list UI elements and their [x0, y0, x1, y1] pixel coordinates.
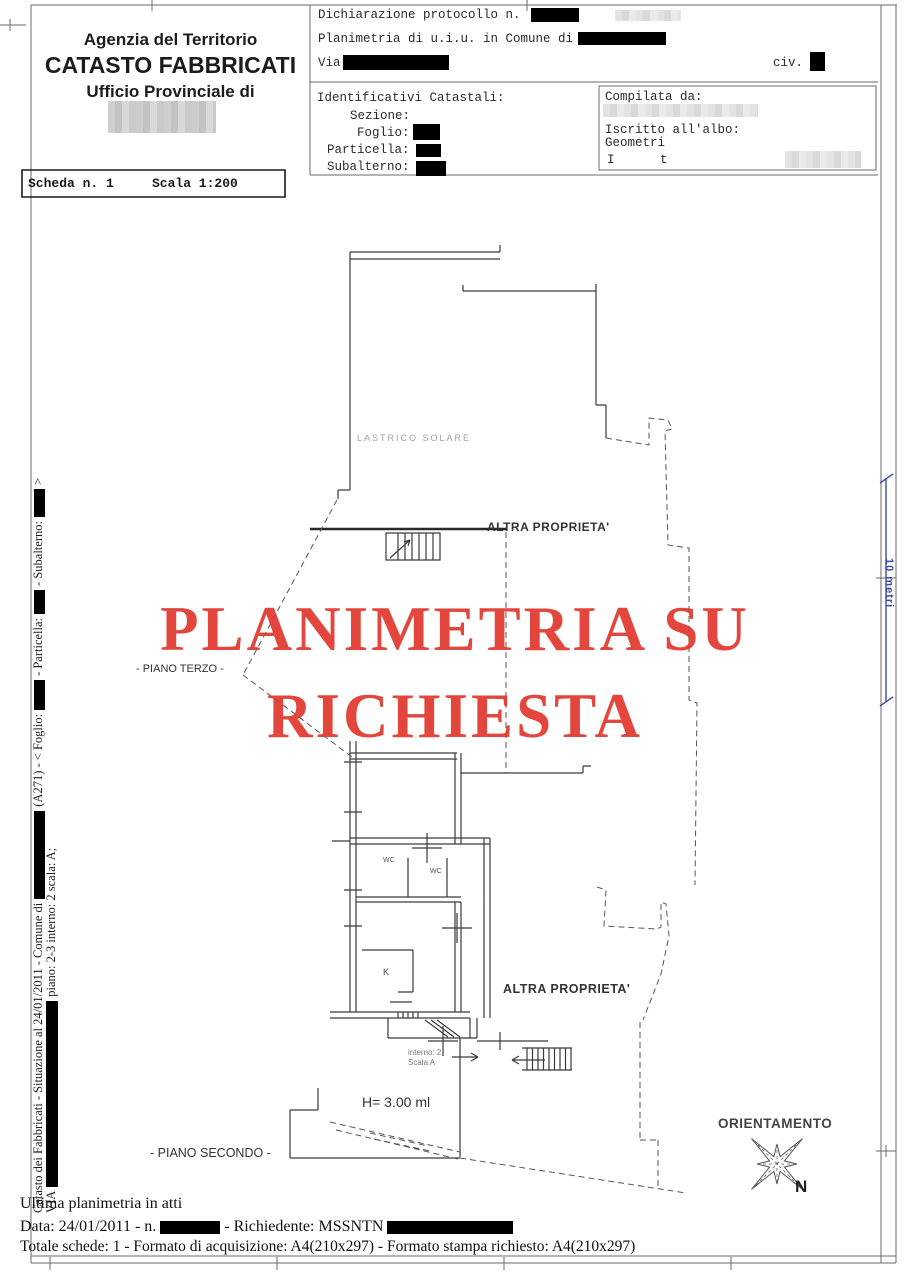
footer-name-redaction [387, 1221, 513, 1234]
kitchen-label: K [383, 967, 389, 977]
orientation-title: ORIENTAMENTO [718, 1116, 832, 1131]
albo-label: Iscritto all'albo: [605, 123, 740, 137]
compiler-name-redaction [603, 104, 758, 117]
footer-line3: Totale schede: 1 - Formato di acquisizio… [20, 1238, 635, 1256]
scala-a-label: Scala A [408, 1058, 435, 1067]
agency-name: Agenzia del Territorio [31, 30, 310, 50]
footer-richiedente-text: - Richiedente: MSSNTN [224, 1218, 383, 1235]
particella-label: Particella: [327, 143, 410, 157]
north-label: N [795, 1177, 807, 1197]
interno-label: interno: 2 [408, 1048, 441, 1057]
piano-secondo-label: - PIANO SECONDO - [150, 1146, 271, 1160]
protocol-number-redaction [531, 8, 579, 22]
footer-line2: Data: 24/01/2011 - n. - Richiedente: MSS… [20, 1218, 513, 1236]
planimetria-line: Planimetria di u.i.u. in Comune di [318, 32, 573, 46]
footer-date-text: Data: 24/01/2011 - n. [20, 1218, 156, 1235]
particella-value-redaction [416, 144, 441, 157]
protocol-label: Dichiarazione protocollo n. [318, 8, 521, 22]
sidebar-foglio-redaction [34, 680, 45, 710]
compiler-title: Compilata da: [605, 90, 703, 104]
wc2-label: WC [430, 868, 442, 875]
foglio-label: Foglio: [357, 126, 410, 140]
sidebar-comune-redaction [34, 811, 45, 899]
via-label: Via [318, 56, 341, 70]
identifiers-title: Identificativi Catastali: [317, 91, 505, 105]
comune-redaction [578, 32, 666, 45]
sidebar-outer-text-2: (A271) - < Foglio: [31, 714, 45, 807]
subalterno-value-redaction [416, 161, 446, 176]
room-height-label: H= 3.00 ml [362, 1094, 430, 1110]
sidebar-outer-text-3: - Particella: [31, 618, 45, 676]
compiler-fragment-2: t [660, 153, 668, 167]
foglio-value-redaction [413, 124, 440, 140]
altra-proprieta-bottom-label: ALTRA PROPRIETA' [503, 982, 630, 996]
office-name-redaction [108, 101, 216, 133]
sidebar-outer-text-4: - Subalterno: [31, 521, 45, 586]
civ-label: civ. [773, 56, 803, 70]
sidebar-subalterno-redaction [34, 489, 45, 517]
scale-value: Scala 1:200 [152, 176, 238, 191]
subalterno-label: Subalterno: [327, 160, 410, 174]
sidebar-via-redaction [46, 1001, 58, 1187]
wc1-label: WC [383, 857, 395, 864]
sezione-label: Sezione: [350, 109, 410, 123]
sidebar-piano-text: piano: 2-3 interno: 2 scala: A; [44, 848, 58, 997]
albo-category: Geometri [605, 136, 665, 150]
civ-redaction [810, 52, 825, 71]
via-redaction [343, 55, 449, 70]
sidebar-outer-text-5: > [31, 478, 45, 485]
catasto-title: CATASTO FABBRICATI [31, 52, 310, 79]
compiler-extra-redaction [785, 151, 861, 168]
scalebar-label: 10 metri [883, 558, 895, 608]
cadastral-sheet: Agenzia del Territorio CATASTO FABBRICAT… [0, 0, 907, 1280]
watermark-line2: RICHIESTA [45, 685, 865, 748]
compiler-fragment-1: I [607, 153, 615, 167]
watermark-line1: PLANIMETRIA SU [45, 598, 865, 661]
scheda-number: Scheda n. 1 [28, 176, 114, 191]
lastrico-solare-label: LASTRICO SOLARE [357, 433, 471, 443]
sidebar-inner-line: VIApiano: 2-3 interno: 2 scala: A; [44, 848, 59, 1213]
sidebar-outer-text-1: Catasto dei Fabbricati - Situazione al 2… [31, 903, 45, 1213]
footer-line1: Ultima planimetria in atti [20, 1195, 182, 1213]
footer-number-redaction [160, 1221, 220, 1234]
provincial-office-label: Ufficio Provinciale di [31, 82, 310, 102]
altra-proprieta-top-label: ALTRA PROPRIETA' [487, 520, 610, 534]
sidebar-particella-redaction [34, 590, 45, 614]
piano-terzo-label: - PIANO TERZO - [136, 663, 224, 675]
protocol-smear-redaction [615, 10, 681, 21]
